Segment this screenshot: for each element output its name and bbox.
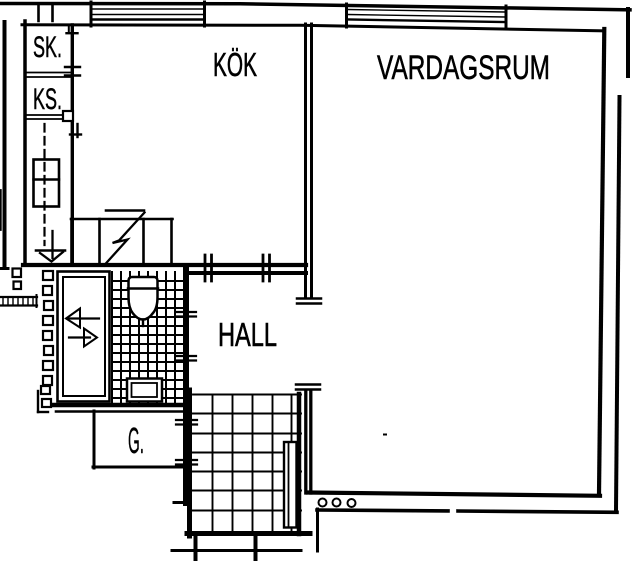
svg-text:KS.: KS. <box>33 83 62 116</box>
svg-text:G.: G. <box>128 420 144 461</box>
svg-text:SK.: SK. <box>33 31 62 64</box>
svg-text:VARDAGSRUM: VARDAGSRUM <box>377 49 550 87</box>
svg-text:KÖK: KÖK <box>213 46 257 83</box>
svg-text:HALL: HALL <box>218 316 277 353</box>
